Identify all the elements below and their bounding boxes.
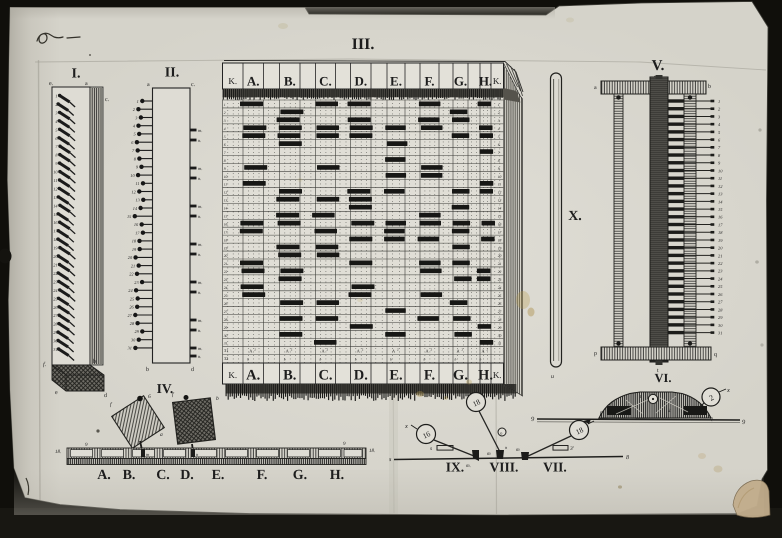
svg-text:21: 21 (131, 263, 135, 268)
svg-text:10: 10 (498, 175, 502, 179)
svg-text:a: a (85, 81, 88, 87)
svg-text:28: 28 (224, 318, 228, 322)
svg-text:C.: C. (319, 74, 332, 89)
svg-text:f.: f. (43, 361, 46, 368)
svg-text:u: u (551, 374, 554, 380)
svg-text:19: 19 (224, 246, 228, 250)
svg-text:X.: X. (568, 209, 582, 224)
svg-text:29: 29 (498, 326, 502, 330)
svg-text:9: 9 (224, 167, 226, 171)
svg-text:n.: n. (198, 252, 201, 257)
svg-text:b: b (247, 358, 249, 362)
svg-text:a: a (594, 85, 597, 91)
svg-text:c.: c. (105, 97, 110, 103)
svg-text:31: 31 (224, 348, 228, 353)
svg-text:m: m (487, 452, 491, 457)
svg-text:23: 23 (134, 280, 138, 285)
svg-text:q.: q. (710, 416, 714, 422)
svg-text:28: 28 (498, 318, 502, 322)
svg-text:6: 6 (498, 143, 500, 147)
svg-text:H.: H. (479, 74, 492, 89)
svg-text:n.: n. (198, 138, 201, 143)
svg-text:5: 5 (224, 135, 226, 139)
svg-text:III.: III. (352, 36, 375, 53)
svg-text:e: e (55, 390, 58, 396)
svg-text:22: 22 (224, 270, 228, 274)
svg-text:14: 14 (498, 207, 502, 211)
svg-text:b: b (355, 358, 357, 362)
svg-text:B.: B. (283, 368, 296, 384)
svg-text:VI.: VI. (654, 371, 671, 385)
svg-text:18.: 18. (55, 449, 61, 455)
svg-text:11: 11 (718, 176, 722, 181)
svg-text:30: 30 (224, 334, 228, 338)
svg-text:13: 13 (224, 199, 228, 203)
svg-text:1: 1 (55, 94, 57, 99)
svg-text:18: 18 (224, 238, 228, 242)
svg-text:18.: 18. (369, 448, 375, 454)
svg-text:25: 25 (498, 294, 502, 298)
svg-text:F.: F. (425, 74, 435, 89)
svg-text:n.: n. (198, 328, 201, 333)
svg-text:1: 1 (718, 99, 720, 104)
svg-text:21: 21 (498, 262, 502, 266)
svg-text:D.: D. (180, 468, 194, 483)
svg-text:n.: n. (198, 214, 201, 219)
svg-text:n.: n. (198, 354, 201, 359)
svg-text:4: 4 (224, 127, 226, 131)
svg-text:V.: V. (652, 58, 665, 74)
svg-text:2: 2 (498, 111, 500, 115)
svg-text:G.: G. (293, 468, 307, 483)
svg-text:11: 11 (224, 183, 228, 187)
svg-text:VIII.: VIII. (490, 460, 519, 475)
svg-text:24: 24 (224, 286, 228, 290)
svg-text:E.: E. (389, 368, 402, 384)
svg-text:21: 21 (53, 263, 57, 268)
svg-text:32: 32 (224, 356, 228, 361)
svg-text:A.: A. (246, 368, 260, 384)
svg-text:8: 8 (626, 455, 629, 461)
svg-text:m.: m. (198, 242, 202, 247)
svg-text:19: 19 (498, 246, 502, 250)
svg-text:B.: B. (284, 74, 296, 89)
svg-text:31: 31 (224, 342, 228, 346)
svg-text:15: 15 (224, 215, 228, 219)
svg-text:D.: D. (354, 74, 367, 89)
svg-text:30: 30 (498, 334, 502, 338)
svg-text:27: 27 (224, 310, 228, 314)
svg-text:m.: m. (198, 128, 202, 133)
svg-text:x: x (404, 423, 408, 430)
svg-text:A.: A. (247, 74, 260, 89)
svg-text:23: 23 (53, 279, 57, 284)
svg-text:H.: H. (330, 468, 344, 483)
svg-text:b: b (480, 358, 482, 362)
svg-text:1: 1 (224, 103, 226, 107)
svg-text:13: 13 (498, 199, 502, 203)
svg-text:15: 15 (498, 215, 502, 219)
svg-text:D.: D. (354, 368, 368, 384)
svg-text:3: 3 (498, 119, 500, 123)
svg-text:q: q (714, 352, 717, 358)
svg-text:b: b (390, 358, 392, 362)
svg-text:b: b (455, 358, 457, 362)
svg-text:b: b (216, 396, 219, 402)
svg-text:1: 1 (137, 99, 139, 104)
svg-text:21: 21 (224, 262, 228, 266)
svg-text:12: 12 (224, 191, 228, 195)
svg-text:25: 25 (224, 294, 228, 298)
svg-text:m.: m. (198, 166, 202, 171)
svg-text:K.: K. (228, 76, 237, 86)
svg-text:G.: G. (453, 368, 468, 384)
svg-text:31: 31 (53, 347, 57, 352)
svg-text:3′: 3′ (569, 446, 575, 452)
svg-text:31: 31 (128, 346, 132, 351)
svg-text:16: 16 (498, 222, 502, 226)
svg-text:x: x (726, 387, 730, 394)
svg-text:s: s (430, 446, 432, 452)
svg-text:3: 3 (135, 115, 137, 120)
svg-text:2: 2 (224, 111, 226, 115)
svg-text:11: 11 (54, 178, 58, 183)
svg-text:m.: m. (198, 346, 202, 351)
svg-text:24: 24 (498, 286, 502, 290)
svg-text:n.: n. (198, 290, 201, 295)
svg-text:B.: B. (123, 468, 136, 483)
svg-text:H.: H. (478, 368, 493, 384)
svg-text:20: 20 (224, 254, 228, 258)
svg-text:3: 3 (224, 119, 226, 123)
svg-text:5: 5 (498, 135, 500, 139)
svg-text:d: d (104, 392, 107, 399)
svg-text:K.: K. (228, 370, 237, 380)
svg-text:27: 27 (498, 310, 502, 314)
svg-text:IX.: IX. (446, 460, 464, 475)
svg-text:A.: A. (97, 468, 111, 483)
svg-text:b: b (146, 366, 149, 373)
svg-text:13: 13 (53, 195, 57, 200)
svg-text:20: 20 (498, 254, 502, 258)
svg-text:13: 13 (136, 198, 140, 203)
svg-text:18: 18 (498, 238, 502, 242)
svg-text:m.: m. (198, 204, 202, 209)
svg-text:E.: E. (212, 468, 225, 483)
svg-text:b: b (93, 358, 96, 365)
svg-text:7: 7 (498, 151, 500, 155)
svg-text:29: 29 (224, 326, 228, 330)
svg-text:11: 11 (498, 183, 502, 187)
svg-text:23: 23 (224, 278, 228, 282)
svg-text:6: 6 (224, 143, 226, 147)
svg-text:m.: m. (466, 464, 471, 469)
svg-text:9: 9 (498, 167, 500, 171)
svg-text:b: b (708, 83, 711, 90)
svg-text:m.: m. (198, 280, 202, 285)
svg-text:b: b (424, 358, 426, 362)
svg-text:31: 31 (498, 342, 502, 346)
svg-text:8: 8 (224, 159, 226, 163)
svg-text:VII.: VII. (543, 460, 567, 475)
svg-text:14: 14 (224, 207, 228, 211)
svg-text:6: 6 (148, 394, 151, 400)
svg-text:E.: E. (390, 74, 402, 89)
svg-text:26: 26 (498, 302, 502, 306)
svg-text:10: 10 (224, 175, 228, 179)
svg-text:d: d (191, 366, 194, 373)
svg-text:3: 3 (55, 110, 57, 115)
svg-text:e.: e. (49, 81, 54, 87)
svg-text:17: 17 (224, 230, 228, 234)
svg-text:I.: I. (72, 67, 81, 82)
svg-text:F.: F. (257, 468, 268, 483)
svg-text:K.: K. (493, 76, 502, 86)
svg-text:b: b (284, 358, 286, 362)
svg-text:G.: G. (454, 74, 467, 89)
svg-text:17: 17 (498, 230, 502, 234)
svg-text:K.: K. (493, 370, 502, 380)
svg-text:12: 12 (498, 191, 502, 195)
svg-text:4: 4 (498, 127, 500, 131)
svg-text:p: p (599, 410, 603, 416)
svg-text:b: b (320, 358, 322, 362)
svg-text:C.: C. (156, 468, 170, 483)
svg-text:23: 23 (498, 278, 502, 282)
svg-text:8: 8 (498, 159, 500, 163)
svg-text:II.: II. (165, 66, 179, 81)
svg-text:a: a (147, 82, 150, 88)
svg-text:n.: n. (198, 176, 201, 181)
svg-text:c.: c. (191, 82, 196, 88)
svg-text:31: 31 (718, 331, 722, 336)
svg-text:16: 16 (224, 222, 228, 226)
svg-text:7: 7 (224, 151, 226, 155)
svg-text:22: 22 (498, 270, 502, 274)
svg-text:IV.: IV. (157, 381, 174, 396)
svg-text:F.: F. (424, 368, 435, 384)
svg-text:11: 11 (136, 181, 140, 186)
svg-text:m: m (516, 448, 520, 453)
svg-text:C.: C. (318, 368, 332, 384)
svg-text:m.: m. (198, 318, 202, 323)
svg-text:21: 21 (718, 253, 722, 258)
svg-text:p: p (594, 351, 597, 357)
svg-text:1: 1 (498, 103, 500, 107)
svg-text:a: a (160, 432, 163, 438)
svg-text:26: 26 (224, 302, 228, 306)
